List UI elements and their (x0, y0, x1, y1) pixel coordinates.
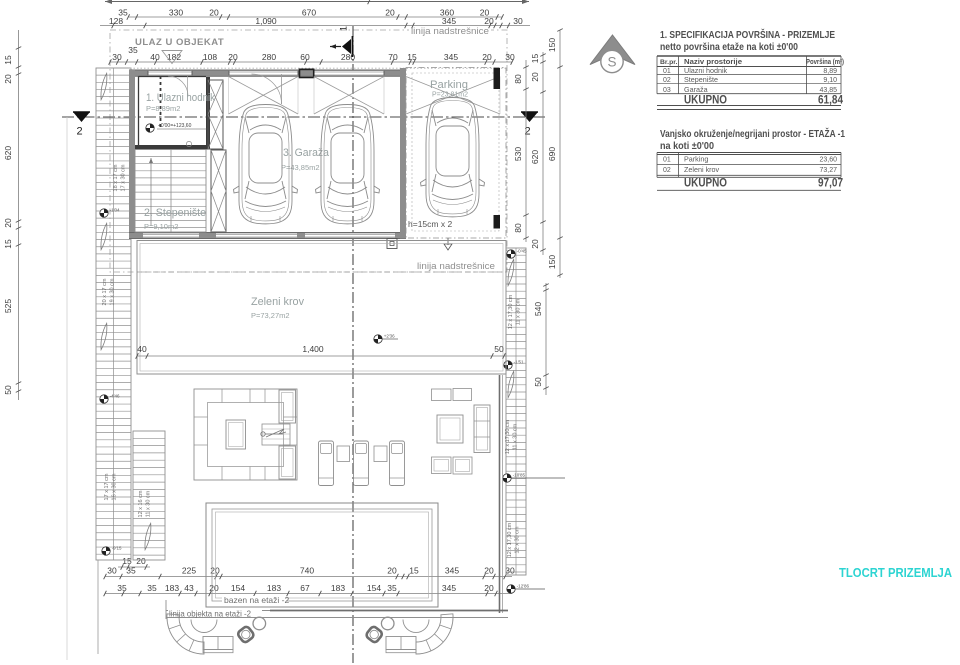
svg-text:225: 225 (182, 566, 196, 576)
svg-text:+2'36: +2'36 (384, 334, 395, 339)
svg-text:-10'85: -10'85 (513, 473, 526, 478)
svg-text:70: 70 (388, 52, 398, 62)
svg-text:8,89: 8,89 (823, 68, 837, 75)
svg-text:35: 35 (117, 583, 127, 593)
svg-text:40: 40 (150, 52, 160, 62)
svg-text:35: 35 (387, 583, 397, 593)
svg-text:345: 345 (445, 566, 459, 576)
svg-text:50: 50 (494, 344, 504, 354)
svg-text:-1'51: -1'51 (514, 360, 524, 365)
svg-text:20: 20 (209, 8, 219, 18)
svg-text:linija objekta na etaži -2: linija objekta na etaži -2 (169, 609, 251, 619)
svg-text:20: 20 (484, 16, 494, 26)
svg-text:12 x 30 cm: 12 x 30 cm (515, 526, 521, 553)
svg-text:525: 525 (3, 299, 13, 313)
svg-text:linija nadstrešnice: linija nadstrešnice (417, 261, 495, 271)
svg-text:690: 690 (547, 147, 557, 161)
svg-text:01: 01 (663, 157, 671, 164)
svg-text:97,07: 97,07 (818, 178, 843, 190)
svg-text:20: 20 (209, 583, 219, 593)
svg-text:154: 154 (231, 583, 245, 593)
svg-text:740: 740 (300, 566, 314, 576)
svg-text:30: 30 (513, 16, 523, 26)
svg-text:17 x 30 cm: 17 x 30 cm (121, 164, 127, 191)
svg-text:2: 2 (76, 126, 82, 138)
svg-text:netto površina etaže na koti ±: netto površina etaže na koti ±0'00 (660, 42, 798, 53)
svg-text:20 x 17 cm: 20 x 17 cm (102, 278, 108, 305)
svg-text:Zeleni krov: Zeleni krov (251, 296, 304, 308)
svg-text:61,84: 61,84 (818, 95, 844, 107)
svg-text:80: 80 (513, 223, 523, 233)
svg-text:30: 30 (107, 566, 117, 576)
svg-text:linija nadstrešnice: linija nadstrešnice (411, 26, 489, 36)
svg-text:P=73,27m2: P=73,27m2 (251, 311, 290, 320)
svg-text:9,10: 9,10 (823, 77, 837, 84)
svg-text:108: 108 (203, 52, 217, 62)
svg-text:280: 280 (262, 52, 276, 62)
svg-text:S: S (607, 55, 616, 70)
svg-text:20: 20 (482, 52, 492, 62)
svg-text:1. Ulazni hodnik: 1. Ulazni hodnik (146, 92, 215, 104)
svg-text:Br.pr.: Br.pr. (660, 59, 677, 66)
svg-text:-4'46: -4'46 (110, 394, 120, 399)
svg-text:43: 43 (184, 583, 194, 593)
svg-text:UKUPNO: UKUPNO (684, 95, 727, 107)
svg-text:03: 03 (663, 87, 671, 94)
svg-text:20: 20 (136, 556, 146, 566)
svg-text:-0'45: -0'45 (517, 249, 527, 254)
svg-text:P=9,10m2: P=9,10m2 (144, 222, 178, 231)
svg-text:50: 50 (533, 377, 543, 387)
svg-text:15: 15 (530, 54, 540, 64)
svg-text:UKUPNO: UKUPNO (684, 178, 727, 190)
svg-text:15: 15 (122, 556, 132, 566)
svg-text:183: 183 (331, 583, 345, 593)
svg-text:+0'00=+123,60: +0'00=+123,60 (158, 123, 192, 129)
svg-text:Parking: Parking (430, 79, 468, 91)
svg-text:1,400: 1,400 (302, 344, 324, 354)
svg-text:-1'04: -1'04 (110, 208, 120, 213)
svg-text:80: 80 (513, 74, 523, 84)
svg-text:1,090: 1,090 (255, 16, 277, 26)
svg-text:15: 15 (409, 566, 419, 576)
svg-text:Stepenište: Stepenište (684, 75, 718, 84)
svg-text:11 x 30 cm: 11 x 30 cm (516, 298, 522, 325)
svg-text:330: 330 (169, 8, 183, 18)
svg-text:540: 540 (533, 302, 543, 316)
svg-text:20: 20 (530, 72, 540, 82)
svg-text:P=43,85m2: P=43,85m2 (281, 163, 320, 172)
svg-text:150: 150 (547, 255, 557, 269)
svg-text:280: 280 (341, 52, 355, 62)
svg-text:na koti ±0'00: na koti ±0'00 (660, 141, 714, 152)
svg-text:19 x 30 cm: 19 x 30 cm (110, 278, 116, 305)
svg-text:P=8,89m2: P=8,89m2 (146, 104, 180, 113)
svg-text:183: 183 (165, 583, 179, 593)
svg-text:12 x 17,30 cm: 12 x 17,30 cm (507, 522, 513, 557)
svg-text:15: 15 (3, 239, 13, 249)
svg-text:16 x 30 cm: 16 x 30 cm (112, 473, 118, 500)
svg-text:TLOCRT PRIZEMLJA: TLOCRT PRIZEMLJA (839, 565, 953, 580)
svg-text:345: 345 (444, 52, 458, 62)
svg-text:154: 154 (367, 583, 381, 593)
svg-text:20: 20 (484, 566, 494, 576)
svg-text:20: 20 (530, 239, 540, 249)
svg-text:128: 128 (109, 16, 123, 26)
svg-text:-9'15: -9'15 (112, 546, 122, 551)
svg-text:3. Garaža: 3. Garaža (283, 147, 330, 159)
svg-text:20: 20 (387, 566, 397, 576)
svg-text:20: 20 (228, 52, 238, 62)
svg-text:bazen na etaži -2: bazen na etaži -2 (224, 595, 289, 605)
svg-text:20: 20 (3, 218, 13, 228)
svg-text:11 x 30 cm: 11 x 30 cm (146, 490, 152, 517)
svg-text:67: 67 (300, 583, 310, 593)
svg-text:345: 345 (442, 583, 456, 593)
svg-text:50: 50 (3, 385, 13, 395)
svg-text:620: 620 (530, 150, 540, 164)
svg-text:530: 530 (513, 147, 523, 161)
svg-text:ULAZ U OBJEKAT: ULAZ U OBJEKAT (135, 37, 224, 48)
svg-text:Naziv prostorije: Naziv prostorije (684, 57, 742, 66)
svg-text:183: 183 (267, 583, 281, 593)
svg-text:23,60: 23,60 (819, 157, 837, 164)
svg-text:30: 30 (505, 566, 515, 576)
svg-text:60: 60 (300, 52, 310, 62)
svg-text:40: 40 (137, 344, 147, 354)
svg-text:620: 620 (3, 146, 13, 160)
svg-text:345: 345 (442, 16, 456, 26)
svg-text:Parking: Parking (684, 155, 708, 164)
svg-text:150: 150 (547, 38, 557, 52)
svg-text:12 x 16 cm: 12 x 16 cm (138, 490, 144, 517)
svg-text:Zeleni krov: Zeleni krov (684, 165, 720, 174)
svg-text:20: 20 (385, 8, 395, 18)
svg-text:11 x 30 cm: 11 x 30 cm (513, 423, 519, 450)
svg-text:20: 20 (3, 74, 13, 84)
svg-text:-12'86: -12'86 (517, 584, 530, 589)
svg-text:30: 30 (505, 52, 515, 62)
svg-text:Ulazni hodnik: Ulazni hodnik (684, 66, 728, 75)
svg-text:20: 20 (484, 583, 494, 593)
svg-text:Površina (m²): Površina (m²) (806, 57, 844, 66)
svg-text:35: 35 (147, 583, 157, 593)
svg-text:18 x 17 cm: 18 x 17 cm (113, 164, 119, 191)
svg-text:1: 1 (339, 26, 349, 31)
svg-text:15: 15 (407, 52, 417, 62)
svg-text:73,27: 73,27 (819, 167, 837, 174)
svg-text:02: 02 (663, 167, 671, 174)
svg-text:2. Stepenište: 2. Stepenište (144, 207, 206, 219)
svg-text:17 x 17 cm: 17 x 17 cm (104, 473, 110, 500)
svg-text:12 x 17,30 cm: 12 x 17,30 cm (505, 419, 511, 454)
svg-text:30: 30 (112, 52, 122, 62)
svg-text:15: 15 (3, 55, 13, 65)
svg-text:02: 02 (663, 77, 671, 84)
svg-text:12 x 17,30 cm: 12 x 17,30 cm (508, 294, 514, 329)
svg-text:Garaža: Garaža (684, 85, 708, 94)
svg-text:h=15cm x 2: h=15cm x 2 (408, 219, 452, 229)
svg-text:Vanjsko okruženje/negrijani pr: Vanjsko okruženje/negrijani prostor - ET… (660, 127, 845, 140)
svg-text:43,85: 43,85 (819, 87, 837, 94)
svg-text:01: 01 (663, 68, 671, 75)
svg-text:670: 670 (302, 8, 316, 18)
svg-text:2: 2 (524, 126, 530, 138)
svg-text:1. SPECIFIKACIJA POVRŠINA - PR: 1. SPECIFIKACIJA POVRŠINA - PRIZEMLJE (660, 28, 835, 41)
